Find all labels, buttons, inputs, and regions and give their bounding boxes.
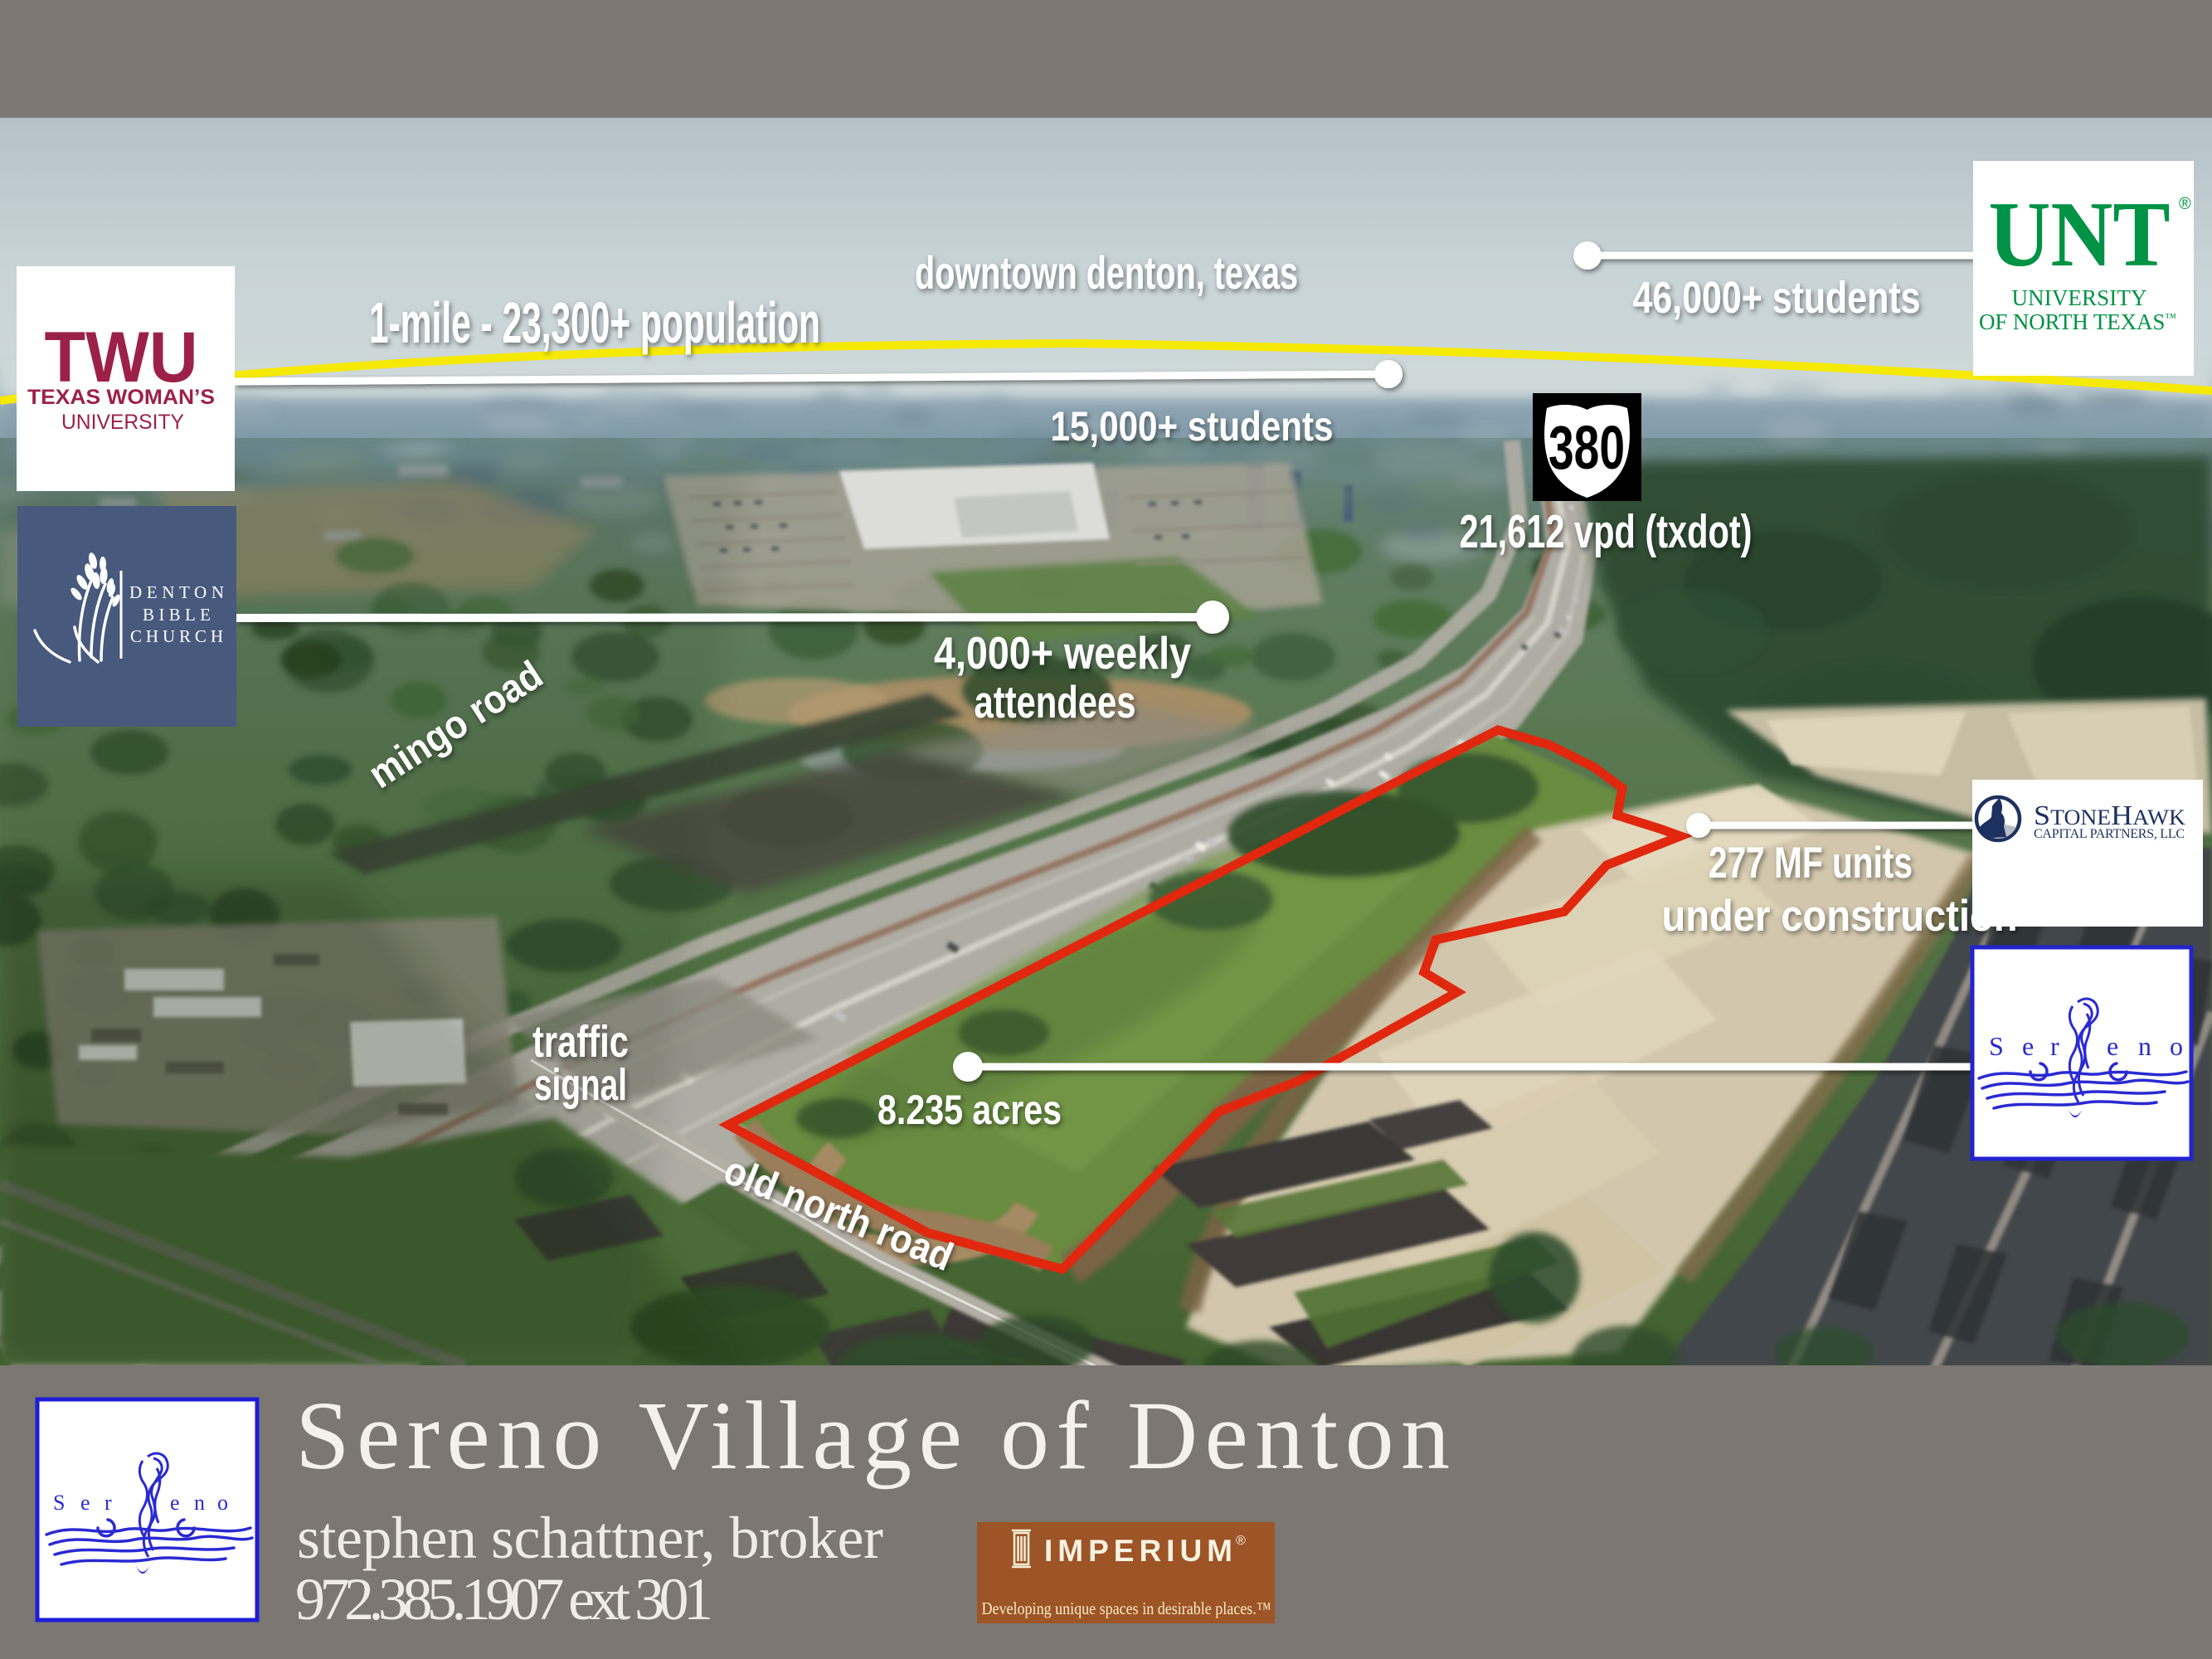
svg-text:UNT: UNT [1989,183,2171,286]
svg-text:e: e [2022,1031,2034,1061]
svg-text:n: n [2138,1031,2151,1061]
svg-text:380: 380 [1548,413,1625,482]
svg-text:OF NORTH TEXAS™: OF NORTH TEXAS™ [1979,309,2176,334]
svg-text:972.385.1907 ext 301: 972.385.1907 ext 301 [295,1566,713,1632]
svg-text:Sereno Village of Denton: Sereno Village of Denton [295,1381,1450,1490]
svg-text:®: ® [1236,1534,1246,1548]
svg-text:CAPITAL PARTNERS, LLC: CAPITAL PARTNERS, LLC [2034,827,2185,841]
svg-text:under construction: under construction [1662,892,2018,941]
svg-text:stephen schattner, broker: stephen schattner, broker [297,1505,883,1571]
svg-text:o: o [217,1491,228,1515]
svg-text:UNIVERSITY: UNIVERSITY [2012,285,2147,310]
svg-text:BIBLE: BIBLE [143,605,211,625]
svg-text:attendees: attendees [975,676,1136,727]
svg-text:e: e [2107,1031,2118,1061]
svg-text:r: r [105,1491,112,1515]
svg-text:r: r [2050,1031,2059,1061]
svg-text:UNIVERSITY: UNIVERSITY [61,411,184,434]
svg-text:downtown denton, texas: downtown denton, texas [915,246,1298,299]
svg-text:1-mile - 23,300+ population: 1-mile - 23,300+ population [369,290,820,355]
svg-text:8.235 acres: 8.235 acres [878,1087,1062,1133]
svg-text:Developing unique spaces in de: Developing unique spaces in desirable pl… [982,1598,1271,1618]
svg-text:e: e [170,1491,180,1515]
svg-text:n: n [194,1491,205,1515]
svg-text:277 MF units: 277 MF units [1709,839,1913,888]
svg-text:S: S [53,1491,65,1515]
svg-text:e: e [80,1491,90,1515]
svg-text:4,000+ weekly: 4,000+ weekly [934,627,1191,679]
svg-text:15,000+ students: 15,000+ students [1051,403,1334,450]
svg-text:traffic: traffic [532,1017,629,1067]
svg-text:46,000+ students: 46,000+ students [1633,273,1921,323]
svg-text:S: S [1989,1031,2004,1061]
svg-text:21,612 vpd (txdot): 21,612 vpd (txdot) [1460,505,1753,558]
svg-text:o: o [2170,1031,2183,1061]
svg-text:signal: signal [534,1060,627,1110]
svg-text:TEXAS WOMAN’S: TEXAS WOMAN’S [27,386,215,409]
svg-text:®: ® [2179,195,2191,213]
